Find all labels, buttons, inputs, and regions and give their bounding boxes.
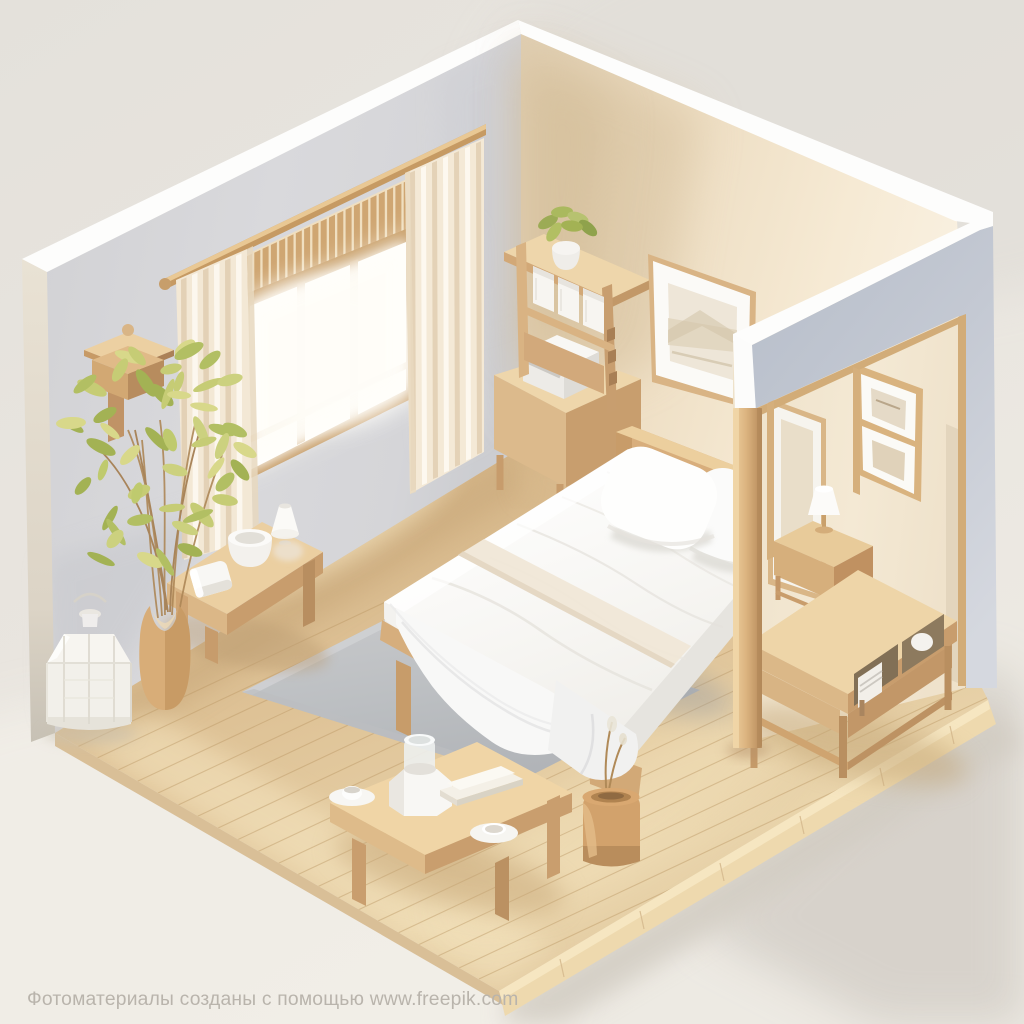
svg-text:Фотоматериалы созданы с помощь: Фотоматериалы созданы с помощью www.free… (27, 989, 518, 1010)
